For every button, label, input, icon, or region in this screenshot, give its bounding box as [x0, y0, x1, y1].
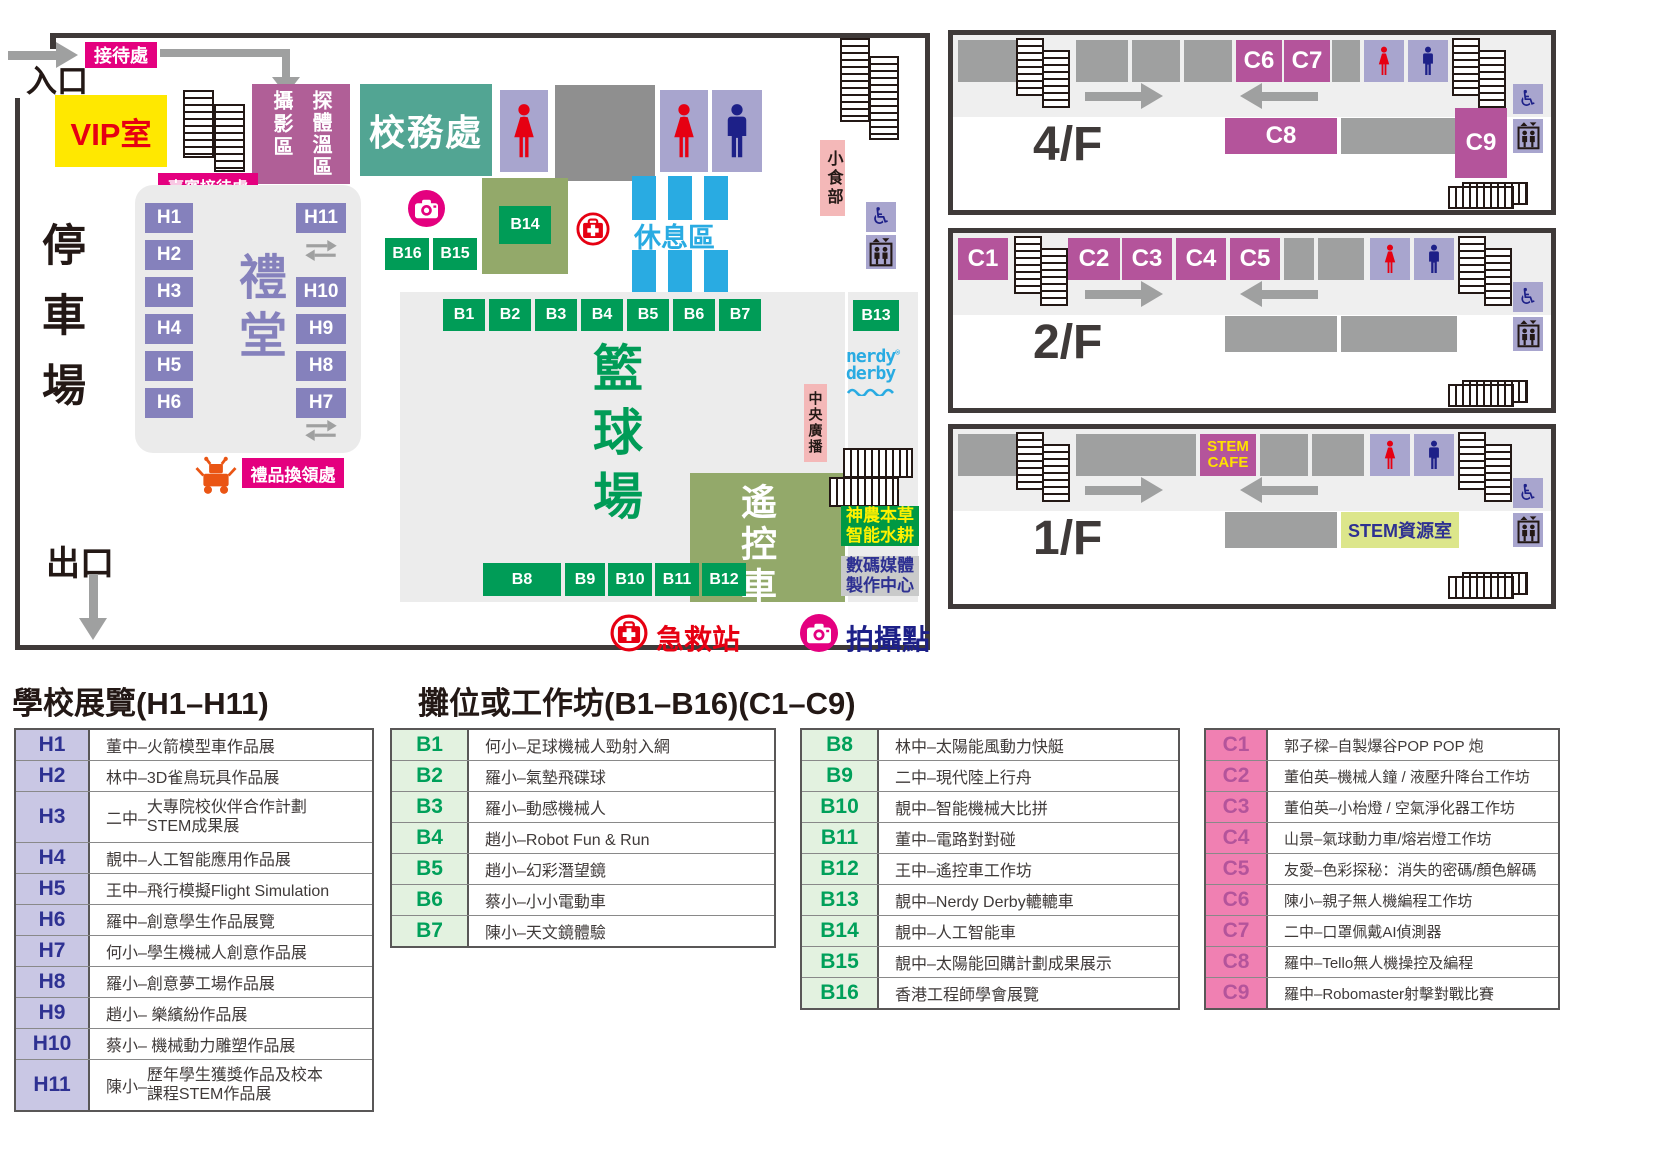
photo-point-label: 拍攝點: [846, 618, 930, 658]
booth-C7: C7: [1284, 40, 1330, 82]
table-row: B4趙小–Robot Fun & Run: [392, 822, 774, 853]
man-icon: [722, 103, 752, 159]
table-row: B12王中–遙控車工作坊: [802, 853, 1178, 884]
stem-cafe: STEM CAFE: [1200, 434, 1256, 476]
room-block: [1284, 238, 1314, 280]
booth-H9: H9: [296, 314, 346, 344]
booths-section-title: 攤位或工作坊(B1–B16)(C1–C9): [418, 678, 856, 723]
booth-C1: C1: [958, 238, 1008, 280]
booth-H7: H7: [296, 388, 346, 418]
stairs-icon: [1448, 576, 1514, 599]
stairs-icon: [1448, 186, 1514, 209]
room-block: [1260, 434, 1308, 476]
stairs-icon: [1448, 384, 1514, 407]
stairs-icon: [214, 104, 245, 172]
direction-arrow-left: [1240, 477, 1318, 503]
parking-label: 停車場: [27, 222, 91, 432]
booth-H8: H8: [296, 351, 346, 381]
booth-C6: C6: [1236, 40, 1282, 82]
female-toilet: [660, 90, 708, 172]
booth-B10: B10: [608, 563, 652, 596]
stairs-icon: [1484, 444, 1512, 502]
direction-arrow-right: [1085, 83, 1163, 109]
schools-table: H1董中–火箭模型車作品展 H2林中–3D雀鳥玩具作品展 H3 二中–大專院校伙…: [14, 728, 374, 1112]
woman-icon: [509, 103, 539, 159]
female-toilet: [500, 90, 548, 172]
table-row: B6蔡小–小小電動車: [392, 884, 774, 915]
booth-H11: H11: [296, 203, 346, 233]
floor-panel-2f: C1 C2 C3 C4 C5 2/F ♿: [948, 228, 1556, 413]
male-toilet: [1414, 434, 1454, 476]
booth-B7: B7: [719, 299, 761, 331]
wheelchair-access-icon: ♿: [866, 202, 896, 232]
school-office: 校務處: [360, 84, 492, 176]
table-row: H6羅中–創意學生作品展覽: [16, 904, 372, 935]
stairs-icon: [829, 477, 899, 507]
table-row: B11董中–電路對對碰: [802, 822, 1178, 853]
booth-B13: B13: [853, 300, 899, 331]
table-row: H5王中–飛行模擬Flight Simulation: [16, 873, 372, 904]
room-block: [1318, 238, 1364, 280]
booth-B4: B4: [581, 299, 623, 331]
male-toilet: [1414, 238, 1454, 280]
direction-arrow-right: [1085, 281, 1163, 307]
female-toilet: [1370, 238, 1410, 280]
man-icon: [1426, 244, 1442, 274]
rest-area-seat: [704, 250, 728, 294]
snack-bar: 小食部: [820, 140, 845, 216]
room-block: [1225, 316, 1337, 352]
floor-panel-4f: C6 C7 C8 4/F C9 ♿: [948, 30, 1556, 215]
snack-bar-label: 小食部: [821, 150, 845, 207]
room-block: [958, 434, 1016, 476]
direction-arrow-left: [1240, 281, 1318, 307]
booth-B3: B3: [535, 299, 577, 331]
stage-block: [555, 85, 655, 181]
elevator-icon: [1513, 513, 1543, 547]
room-block: [1076, 40, 1128, 82]
stairs-icon: [840, 38, 870, 122]
table-row: H11 陳小–歷年學生獲獎作品及校本課程STEM作品展: [16, 1059, 372, 1110]
stairs-icon: [869, 56, 899, 140]
male-toilet: [1408, 40, 1448, 82]
table-row: H8羅小–創意夢工場作品展: [16, 966, 372, 997]
photo-area-label: 攝影區: [267, 90, 296, 159]
booth-C3: C3: [1122, 238, 1172, 280]
booth-C9: C9: [1455, 108, 1507, 178]
woman-icon: [1382, 244, 1398, 274]
table-row: H7何小–學生機械人創意作品展: [16, 935, 372, 966]
table-row: C8羅中–Tello無人機操控及編程: [1206, 946, 1558, 977]
stairs-icon: [1016, 432, 1044, 490]
table-row: B10靚中–智能機械大比拼: [802, 791, 1178, 822]
table-row: C2董伯英–機械人鐘 / 液壓升降台工作坊: [1206, 760, 1558, 791]
room-block: [1341, 316, 1457, 352]
direction-arrow-right: [1085, 477, 1163, 503]
floor-label-1f: 1/F: [1033, 511, 1102, 566]
rest-area-seat: [668, 250, 692, 294]
booth-C8: C8: [1225, 118, 1337, 154]
booth-H6: H6: [145, 388, 193, 418]
table-row: B5趙小–幻彩潛望鏡: [392, 853, 774, 884]
table-row: H2林中–3D雀鳥玩具作品展: [16, 760, 372, 791]
elevator-icon: [1513, 119, 1543, 153]
room-block: [1312, 434, 1364, 476]
gift-redemption-label: 禮品換領處: [242, 458, 344, 488]
two-way-arrows-icon: [305, 240, 337, 261]
digital-media-centre: 數碼媒體 製作中心: [841, 556, 919, 596]
table-row: C7二中–口罩佩戴AI偵測器: [1206, 915, 1558, 946]
workshops-table-c1-c9: C1郭子樑–自製爆谷POP POP 炮 C2董伯英–機械人鐘 / 液壓升降台工作…: [1204, 728, 1560, 1010]
woman-icon: [669, 103, 699, 159]
hall-label: 禮堂: [222, 252, 292, 368]
floor-label-2f: 2/F: [1033, 315, 1102, 370]
female-toilet: [1370, 434, 1410, 476]
stairs-icon: [183, 90, 214, 158]
stairs-icon: [1452, 38, 1480, 96]
room-block: [958, 40, 1016, 82]
stairs-icon: [1478, 50, 1506, 108]
booth-C4: C4: [1176, 238, 1226, 280]
photo-spot-icon: [408, 190, 445, 227]
booths-table-b1-b7: B1何小–足球機械人勁射入網 B2羅小–氣墊飛碟球 B3羅小–動感機械人 B4趙…: [390, 728, 776, 948]
temperature-check-label: 探體溫區: [306, 90, 335, 178]
stairs-icon: [1042, 444, 1070, 502]
table-row: H1董中–火箭模型車作品展: [16, 730, 372, 760]
table-row: B2羅小–氣墊飛碟球: [392, 760, 774, 791]
booth-B16: B16: [385, 238, 429, 270]
table-row: C1郭子樑–自製爆谷POP POP 炮: [1206, 730, 1558, 760]
photo-spot-icon: [800, 614, 838, 652]
room-block: [1184, 40, 1232, 82]
woman-icon: [1376, 46, 1392, 76]
table-row: B3羅小–動感機械人: [392, 791, 774, 822]
booth-B5: B5: [627, 299, 669, 331]
floor-panel-1f: STEM CAFE STEM資源室 1/F ♿: [948, 424, 1556, 609]
rest-area-seat: [668, 176, 692, 220]
event-floor-map: 入口 接待處 出口 停車場 VIP室 攝影區 探體溫區 校務處 小食部 ♿ 嘉賓…: [0, 0, 1654, 1166]
entrance-gap: [9, 30, 51, 42]
wheelchair-access-icon: ♿: [1513, 478, 1543, 508]
booth-B15: B15: [433, 238, 477, 270]
exit-arrow: [78, 574, 108, 640]
rest-area-seat: [704, 176, 728, 220]
room-block: [1341, 118, 1457, 154]
parking-text: 停車場: [27, 222, 91, 432]
table-row: H10蔡小– 機械動力雕塑作品展: [16, 1028, 372, 1059]
rest-area-seat: [632, 176, 656, 220]
photo-and-temp-area: 攝影區 探體溫區: [252, 84, 350, 184]
table-row: C4山景–氣球動力車/熔岩燈工作坊: [1206, 822, 1558, 853]
table-row: C6陳小–親子無人機編程工作坊: [1206, 884, 1558, 915]
table-row: B8林中–太陽能風動力快艇: [802, 730, 1178, 760]
nerdy-derby-squiggle: [846, 387, 904, 396]
room-block: [1132, 40, 1180, 82]
camera-icon: [807, 623, 831, 644]
elevator-icon: [866, 235, 896, 269]
wheelchair-access-icon: ♿: [1513, 84, 1543, 114]
central-broadcast-label: 中央廣播: [806, 391, 826, 455]
first-aid-station-label: 急救站: [656, 618, 740, 658]
booth-row-b1-b7: B1 B2 B3 B4 B5 B6 B7: [443, 299, 761, 331]
booth-B11: B11: [655, 563, 699, 596]
table-row: C5友愛–色彩探秘：消失的密碼/顏色解碼: [1206, 853, 1558, 884]
booth-H1: H1: [145, 203, 193, 233]
booth-H3: H3: [145, 277, 193, 307]
table-row: H4靚中–人工智能應用作品展: [16, 842, 372, 873]
table-row: B7陳小–天文鏡體驗: [392, 915, 774, 946]
woman-icon: [1382, 440, 1398, 470]
table-row: B13靚中–Nerdy Derby轆轆車: [802, 884, 1178, 915]
man-icon: [1420, 46, 1436, 76]
male-toilet: [712, 90, 762, 172]
rest-area-seat: [632, 250, 656, 294]
room-block: [1225, 512, 1337, 548]
table-row: H9趙小– 樂繽紛作品展: [16, 997, 372, 1028]
table-row: B16香港工程師學會展覽: [802, 977, 1178, 1008]
booth-H10: H10: [296, 277, 346, 307]
robot-icon: [193, 456, 239, 495]
booth-B9: B9: [565, 563, 605, 596]
table-row: C3董伯英–小枱燈 / 空氣淨化器工作坊: [1206, 791, 1558, 822]
booth-B12: B12: [702, 563, 746, 596]
man-icon: [1426, 440, 1442, 470]
booth-C2: C2: [1068, 238, 1120, 280]
booths-table-b8-b16: B8林中–太陽能風動力快艇 B9二中–現代陸上行舟 B10靚中–智能機械大比拼 …: [800, 728, 1180, 1010]
reception-arrow-elbow: [282, 49, 290, 79]
stairs-icon: [1484, 248, 1512, 306]
direction-arrow-left: [1240, 83, 1318, 109]
table-row: B9二中–現代陸上行舟: [802, 760, 1178, 791]
stairs-icon: [1458, 236, 1486, 294]
table-row: C9羅中–Robomaster射擊對戰比賽: [1206, 977, 1558, 1008]
female-toilet: [1364, 40, 1404, 82]
room-block: [1076, 434, 1196, 476]
basketball-court-label: 籃球場: [578, 342, 650, 534]
booth-B2: B2: [489, 299, 531, 331]
room-block: [1332, 40, 1360, 82]
booth-B6: B6: [673, 299, 715, 331]
elevator-icon: [1513, 317, 1543, 351]
first-aid-icon: [610, 614, 648, 652]
stairs-icon: [1040, 248, 1068, 306]
booth-C5: C5: [1230, 238, 1280, 280]
reception-label: 接待處: [85, 42, 157, 68]
central-broadcast: 中央廣播: [804, 384, 827, 462]
booth-B14: B14: [499, 206, 551, 244]
two-way-arrows-icon: [305, 420, 337, 441]
vip-room: VIP室: [55, 95, 167, 167]
table-row: B14靚中–人工智能車: [802, 915, 1178, 946]
floor-label-4f: 4/F: [1033, 117, 1102, 172]
stairs-icon: [1014, 236, 1042, 294]
hydroponics-room: 神農本草 智能水耕: [841, 506, 919, 546]
table-row: B15靚中–太陽能回購計劃成果展示: [802, 946, 1178, 977]
booth-H5: H5: [145, 351, 193, 381]
stairs-icon: [1458, 432, 1486, 490]
booth-H4: H4: [145, 314, 193, 344]
camera-icon: [415, 199, 438, 219]
stairs-icon: [1042, 50, 1070, 108]
stairs-icon: [843, 448, 913, 478]
booth-B8: B8: [483, 563, 561, 596]
reception-arrow-shaft: [160, 49, 290, 57]
nerdy-derby-logo: nerdy® derby: [846, 348, 904, 399]
table-row: B1何小–足球機械人勁射入網: [392, 730, 774, 760]
booth-B1: B1: [443, 299, 485, 331]
wheelchair-access-icon: ♿: [1513, 282, 1543, 312]
booth-H2: H2: [145, 240, 193, 270]
table-row: H3 二中–大專院校伙伴合作計劃STEM成果展: [16, 791, 372, 842]
stairs-icon: [1016, 38, 1044, 96]
stem-resource-room: STEM資源室: [1341, 512, 1459, 548]
first-aid-icon: [576, 212, 610, 246]
schools-section-title: 學校展覽(H1–H11): [12, 678, 269, 723]
